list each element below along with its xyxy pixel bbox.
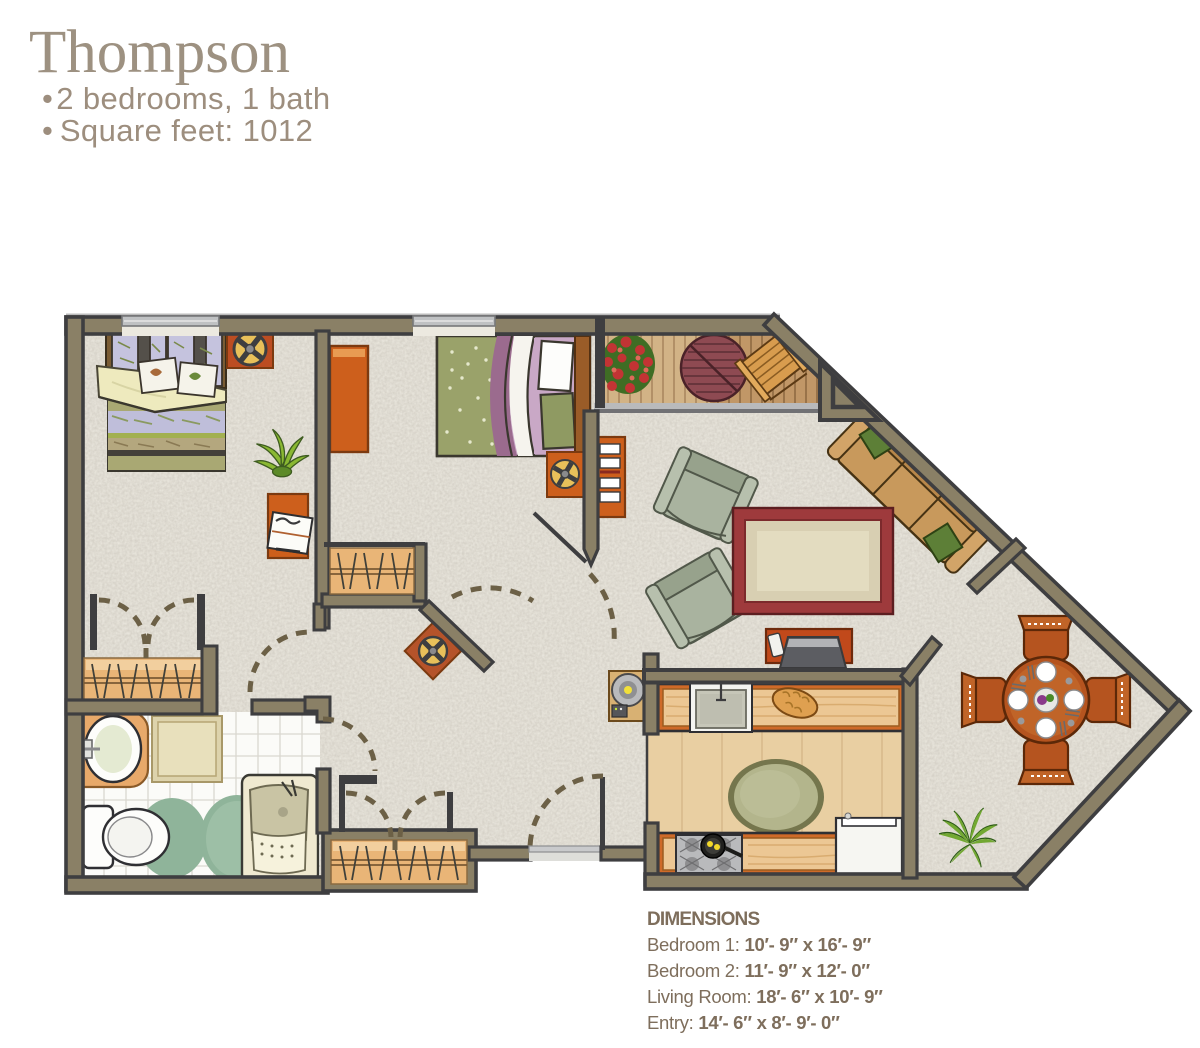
svg-text:Thompson: Thompson — [29, 19, 290, 86]
svg-text:• Square feet: 1012: • Square feet: 1012 — [42, 113, 313, 148]
svg-text:Bedroom 2: 11′- 9″ x 12′- 0″: Bedroom 2: 11′- 9″ x 12′- 0″ — [647, 960, 870, 981]
svg-text:• 2 bedrooms, 1 bath: • 2 bedrooms, 1 bath — [42, 81, 331, 116]
svg-text:Bedroom 1: 10′- 9″ x 16′- 9″: Bedroom 1: 10′- 9″ x 16′- 9″ — [647, 934, 871, 955]
svg-text:DIMENSIONS: DIMENSIONS — [647, 909, 759, 930]
svg-text:Entry: 14′- 6″ x 8′- 9′- 0″: Entry: 14′- 6″ x 8′- 9′- 0″ — [647, 1012, 840, 1033]
svg-text:Living Room: 18′- 6″ x 10′- 9″: Living Room: 18′- 6″ x 10′- 9″ — [647, 986, 883, 1007]
